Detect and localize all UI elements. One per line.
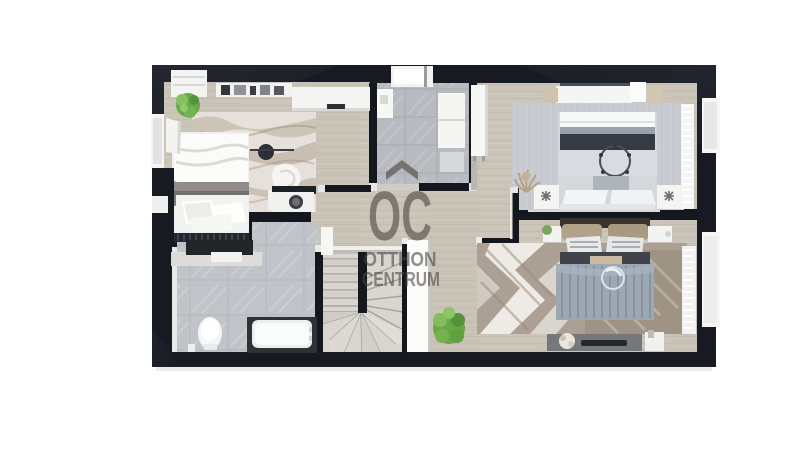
svg-text:CENTRUM: CENTRUM	[362, 269, 440, 291]
svg-text:OC: OC	[368, 177, 432, 255]
svg-text:OTTHON: OTTHON	[364, 249, 437, 271]
